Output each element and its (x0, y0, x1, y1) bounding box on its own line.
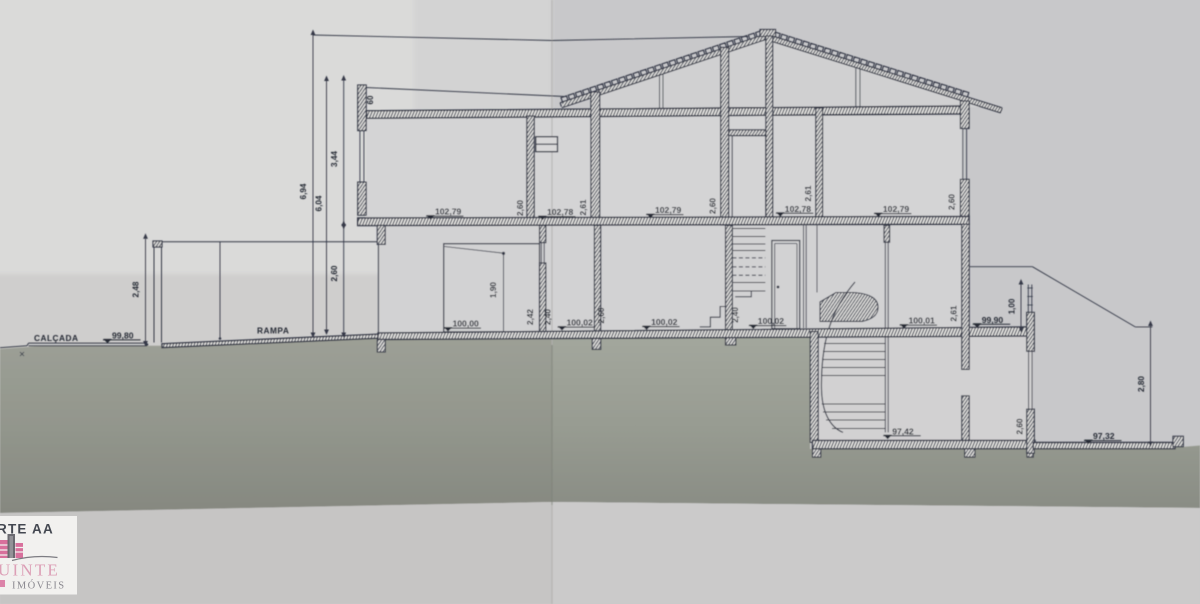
svg-text:60: 60 (366, 95, 375, 104)
svg-text:2,61: 2,61 (579, 199, 588, 215)
svg-text:97,32: 97,32 (1093, 431, 1115, 441)
svg-text:2,80: 2,80 (1137, 376, 1146, 392)
svg-text:102,78: 102,78 (785, 204, 812, 214)
svg-text:100,01: 100,01 (909, 316, 936, 326)
svg-text:100,02: 100,02 (758, 316, 785, 326)
svg-text:2,60: 2,60 (330, 265, 339, 281)
svg-text:1,90: 1,90 (489, 282, 498, 298)
svg-text:2,42: 2,42 (526, 309, 535, 325)
svg-text:6,94: 6,94 (299, 183, 308, 199)
svg-text:102,78: 102,78 (547, 207, 574, 217)
svg-text:2,40: 2,40 (731, 307, 740, 323)
svg-text:UINTE: UINTE (0, 561, 60, 580)
svg-text:100,00: 100,00 (453, 319, 480, 329)
svg-text:99,80: 99,80 (112, 331, 134, 341)
svg-text:RAMPA: RAMPA (257, 326, 289, 336)
svg-text:1,00: 1,00 (1008, 298, 1017, 314)
svg-text:2,60: 2,60 (709, 198, 718, 214)
svg-text:2,60: 2,60 (948, 194, 957, 210)
svg-text:100,02: 100,02 (567, 318, 594, 328)
svg-text:3,44: 3,44 (330, 151, 339, 167)
svg-text:2,61: 2,61 (949, 305, 958, 321)
svg-text:6,04: 6,04 (315, 195, 324, 211)
svg-text:102,79: 102,79 (435, 207, 462, 217)
svg-text:102,79: 102,79 (883, 204, 910, 214)
svg-text:2,40: 2,40 (543, 309, 552, 325)
svg-text:IMÓVEIS: IMÓVEIS (12, 580, 66, 592)
svg-text:99,90: 99,90 (982, 315, 1004, 325)
svg-text:2,60: 2,60 (1016, 418, 1025, 434)
svg-text:CALÇADA: CALÇADA (34, 333, 79, 343)
svg-text:2,48: 2,48 (132, 281, 141, 297)
svg-text:2,60: 2,60 (516, 200, 525, 216)
svg-text:2,61: 2,61 (804, 185, 813, 201)
svg-text:97,42: 97,42 (892, 426, 914, 436)
svg-text:100,02: 100,02 (651, 317, 678, 327)
svg-text:2,60: 2,60 (597, 307, 606, 323)
svg-text:102,79: 102,79 (655, 205, 682, 215)
